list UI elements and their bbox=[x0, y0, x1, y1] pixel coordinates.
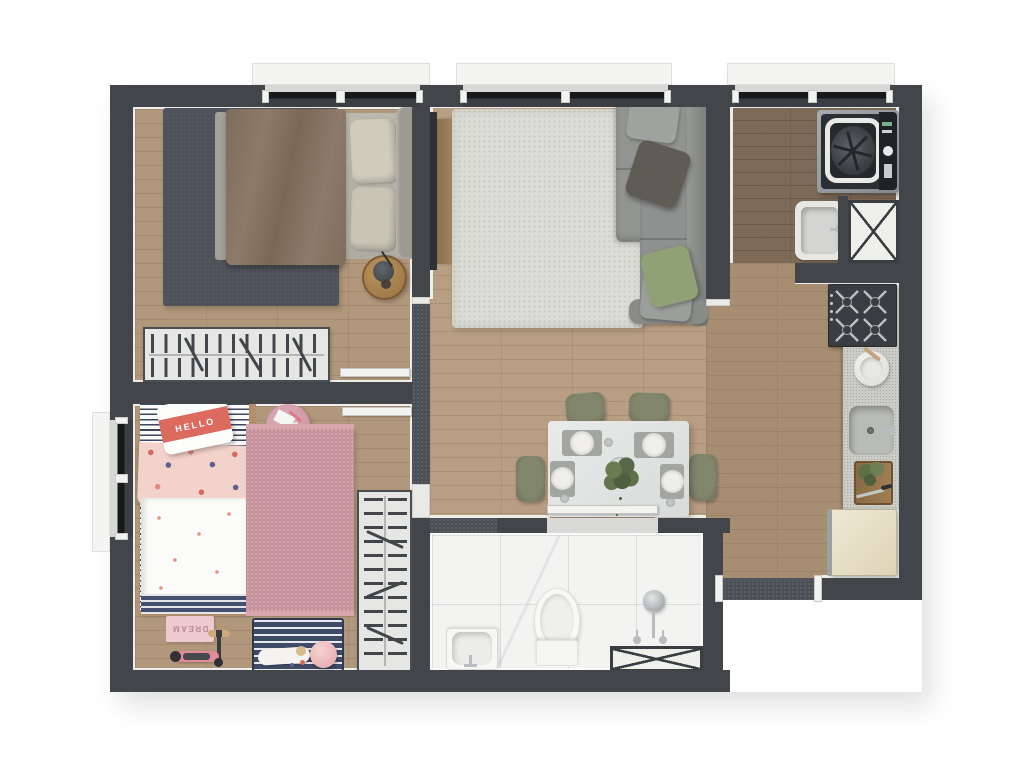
toilet-tank bbox=[536, 640, 578, 666]
corridor-threshold bbox=[412, 484, 430, 518]
cup bbox=[666, 498, 675, 507]
dream-mat: DREAM bbox=[166, 616, 214, 642]
wardrobe-rail-line bbox=[384, 496, 386, 666]
kids-rug-fringe bbox=[246, 611, 354, 616]
toy-bit bbox=[300, 660, 305, 665]
pink-ball bbox=[310, 641, 337, 668]
dining-chair bbox=[628, 392, 670, 423]
window-jamb bbox=[416, 90, 423, 103]
cooktop-knob bbox=[830, 294, 833, 297]
hello-pillow-band: HELLO bbox=[158, 406, 231, 443]
scooter-wheel bbox=[214, 658, 223, 667]
window-sill bbox=[92, 412, 110, 552]
wall-bedrooms-divider bbox=[110, 382, 412, 404]
master-bedroom-door-leaf bbox=[340, 368, 410, 377]
sink-drain bbox=[867, 427, 874, 434]
herb-bunch bbox=[864, 474, 876, 486]
bathroom-door-leaf bbox=[547, 505, 658, 514]
window-jamb bbox=[664, 90, 671, 103]
corridor-threshold bbox=[412, 297, 430, 304]
wardrobe-hangers bbox=[151, 358, 322, 377]
washer-panel-display bbox=[884, 164, 892, 178]
master-wardrobe bbox=[143, 327, 330, 382]
entry-door-jamb bbox=[715, 575, 723, 602]
washer-panel-label bbox=[882, 122, 892, 126]
window-sill bbox=[456, 63, 672, 85]
master-bed-pillow bbox=[349, 118, 397, 184]
window-mullion bbox=[115, 474, 128, 483]
shower-arm bbox=[652, 611, 655, 638]
living-room-rug bbox=[452, 109, 643, 328]
cooktop-knob bbox=[830, 302, 833, 305]
cup bbox=[604, 438, 613, 447]
wall-bathroom-left bbox=[412, 518, 430, 692]
window-jamb bbox=[262, 90, 269, 103]
window-mullion bbox=[336, 90, 345, 103]
plate bbox=[570, 431, 594, 455]
entry-door-jamb bbox=[814, 575, 822, 602]
centerpiece-plant bbox=[599, 453, 641, 495]
wall-liner bbox=[730, 107, 733, 263]
shower-head bbox=[643, 590, 665, 612]
window-jamb bbox=[886, 90, 893, 103]
dream-mat-text: DREAM bbox=[166, 616, 214, 642]
washbasin bbox=[452, 632, 492, 665]
laundry-service-shaft bbox=[848, 200, 899, 263]
kids-wardrobe bbox=[357, 490, 412, 672]
kids-bedroom-door-leaf bbox=[342, 407, 412, 416]
shower-valve bbox=[633, 636, 641, 644]
kids-duvet bbox=[141, 498, 249, 600]
scooter-wheel bbox=[170, 651, 181, 662]
dining-chair bbox=[689, 454, 717, 501]
window-sill bbox=[252, 63, 430, 85]
scooter-grip-clamp bbox=[216, 630, 222, 637]
shower-valve-stem bbox=[636, 630, 638, 637]
cooktop-knob bbox=[830, 310, 833, 313]
kitchen-faucet-base bbox=[890, 425, 895, 435]
cooktop-knob bbox=[830, 318, 833, 321]
washer-drum bbox=[831, 126, 875, 175]
window-jamb bbox=[460, 90, 467, 103]
master-bed-duvet bbox=[226, 109, 346, 265]
plate bbox=[551, 467, 574, 490]
shower-valve bbox=[659, 636, 667, 644]
drum-spoke bbox=[838, 135, 868, 165]
plush-toy-mane bbox=[296, 646, 306, 656]
dining-chair bbox=[516, 456, 545, 502]
wall-end-cap bbox=[706, 299, 730, 306]
window-jamb bbox=[115, 533, 128, 540]
plate bbox=[642, 433, 666, 457]
side-table-decor bbox=[381, 279, 391, 289]
kids-bed-foot-band bbox=[141, 594, 249, 614]
wall-shaft-divider bbox=[838, 196, 848, 266]
burner bbox=[863, 318, 887, 342]
master-bed-headboard bbox=[396, 107, 412, 259]
washer-panel-label bbox=[882, 130, 892, 133]
bathroom-service-shaft bbox=[610, 646, 703, 672]
bathroom-door-threshold bbox=[547, 518, 658, 533]
scooter-deck-grip bbox=[183, 653, 210, 660]
wardrobe-hangers bbox=[364, 498, 383, 664]
toilet-lid bbox=[540, 594, 574, 646]
wall-living-laundry bbox=[706, 85, 730, 305]
washer-dial bbox=[883, 146, 893, 156]
wall-corridor bbox=[412, 85, 430, 297]
window-jamb bbox=[115, 417, 128, 424]
wall-bathroom-top-cut bbox=[430, 518, 497, 533]
master-bed-pillow bbox=[350, 186, 397, 251]
wall-bathroom-right bbox=[703, 518, 723, 692]
burner bbox=[835, 290, 859, 314]
fallen-leaf bbox=[619, 497, 622, 500]
corridor-wall-cut bbox=[412, 304, 430, 484]
window-sill bbox=[727, 63, 895, 85]
sofa-seam bbox=[640, 238, 688, 240]
fallen-leaf bbox=[616, 514, 618, 516]
entry-door-threshold bbox=[723, 578, 815, 600]
shower-valve-stem bbox=[662, 630, 664, 637]
burner bbox=[863, 290, 887, 314]
hello-pillow-text: HELLO bbox=[158, 406, 231, 443]
window-jamb bbox=[732, 90, 739, 103]
wall-kitchen-bottom bbox=[815, 578, 922, 600]
plate bbox=[661, 470, 684, 493]
floor-plan-canvas: HELLO DREAM bbox=[0, 0, 1024, 765]
kids-rug bbox=[246, 428, 354, 612]
refrigerator bbox=[829, 509, 897, 576]
basin-faucet-cross bbox=[464, 664, 477, 667]
toy-bit bbox=[290, 663, 294, 667]
cup bbox=[560, 494, 569, 503]
burner bbox=[835, 318, 859, 342]
wall-bathroom-top-right bbox=[658, 518, 730, 533]
kids-rug-fringe bbox=[246, 424, 354, 429]
wardrobe-rail-line bbox=[149, 354, 324, 356]
window-mullion bbox=[808, 90, 817, 103]
refrigerator-hinge bbox=[827, 509, 832, 576]
wall-laundry-kitchen bbox=[795, 263, 899, 283]
wall-right bbox=[899, 85, 922, 600]
window-mullion bbox=[561, 90, 570, 103]
